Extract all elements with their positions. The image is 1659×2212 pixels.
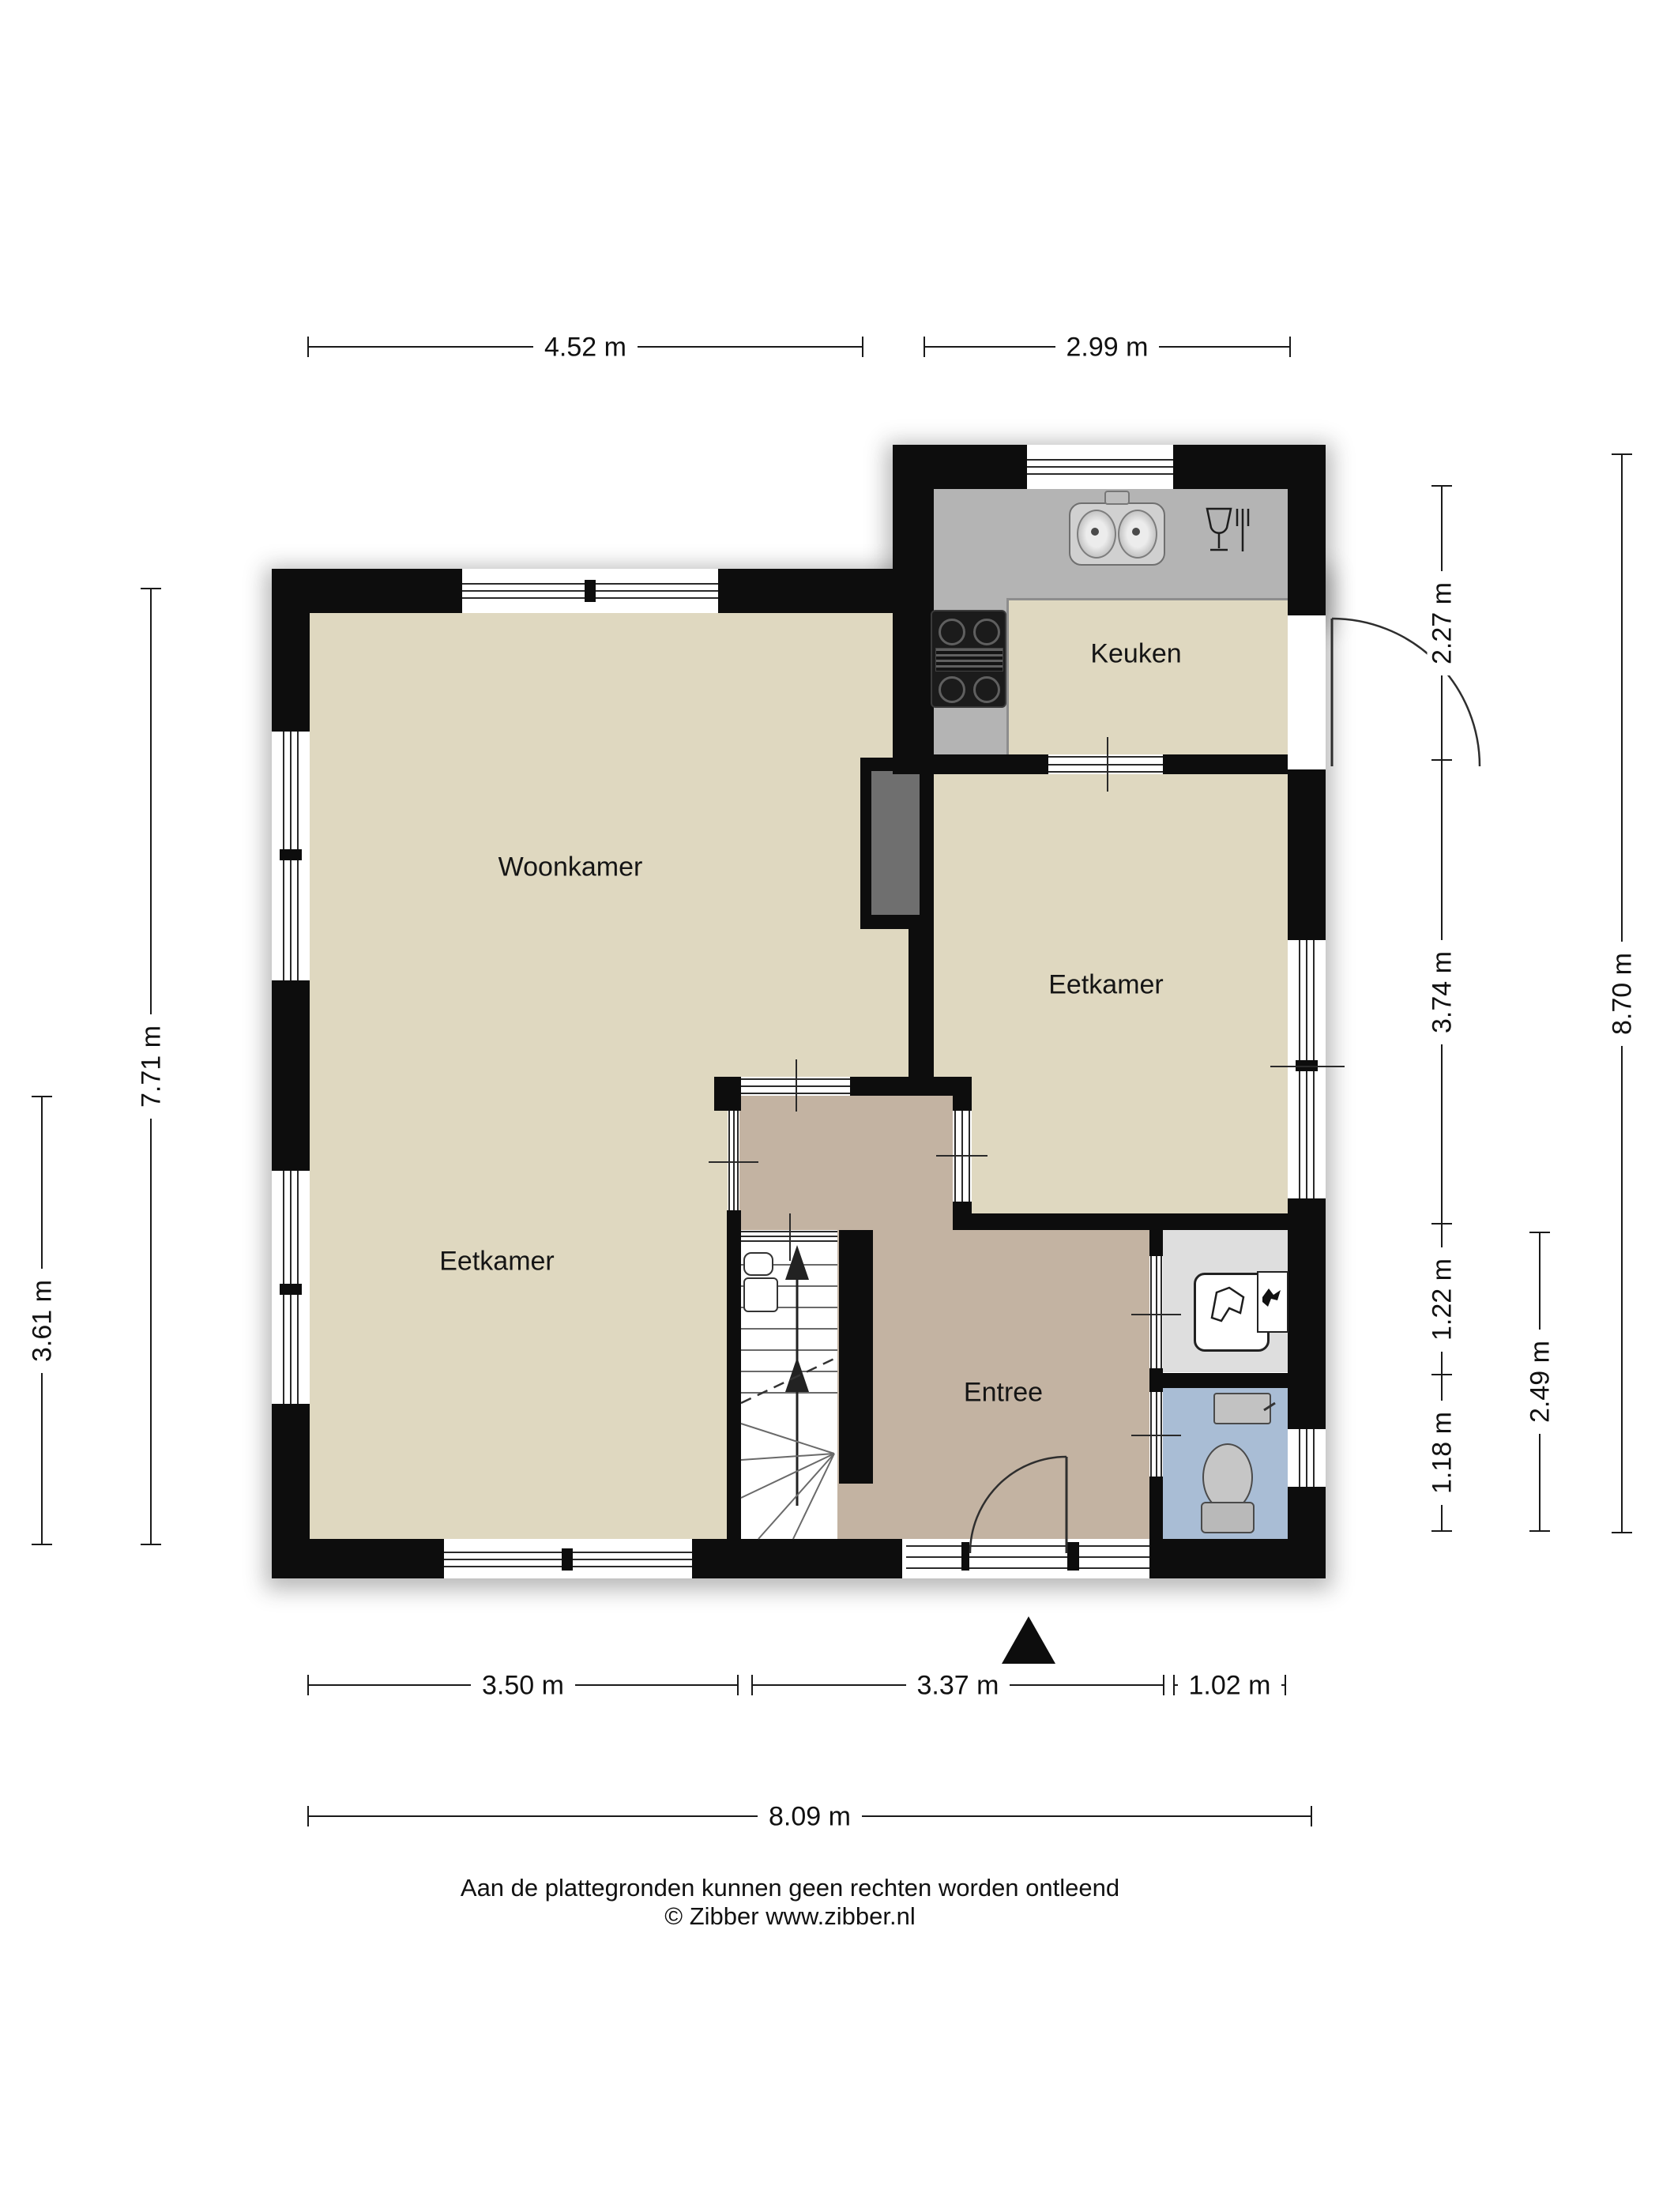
front-sidelight-right	[1079, 1545, 1149, 1569]
wall-keuken-eetkamer-1	[893, 754, 1048, 774]
sink-drain	[1091, 528, 1099, 536]
dimension-label: 1.22 m	[1428, 1247, 1458, 1352]
wall-stairs-right	[839, 1230, 873, 1484]
window-glazing	[728, 1111, 739, 1210]
dimension-label: 3.50 m	[471, 1671, 575, 1702]
window-tick	[936, 1155, 987, 1157]
wall-meterkast-left-1	[1149, 1230, 1163, 1256]
window-bottom	[444, 1539, 692, 1578]
wall-kitchen-top-1	[893, 445, 1027, 489]
dimension-label: 8.70 m	[1608, 942, 1638, 1046]
wall-entree-top	[850, 1077, 953, 1096]
door-meterkast	[1149, 1256, 1163, 1368]
floor-eetkamer-rechts	[934, 774, 1288, 1213]
burner	[939, 619, 965, 645]
faucet-icon	[1104, 491, 1130, 505]
window-mullion	[280, 1284, 302, 1295]
dimension-label: 1.02 m	[1178, 1671, 1282, 1702]
dimension-label: 7.71 m	[137, 1014, 167, 1119]
toilet-tank-icon	[1201, 1502, 1255, 1533]
dimension-label: 2.99 m	[1055, 333, 1160, 363]
window-glazing	[1048, 756, 1163, 773]
window-mullion	[280, 849, 302, 860]
stove-grill	[935, 648, 1003, 671]
window-glazing	[906, 1545, 961, 1569]
dimension-line-1.02-m: 1.02 m	[1174, 1684, 1285, 1686]
window-glazing	[1079, 1545, 1149, 1569]
dimension-line-3.37-m: 3.37 m	[752, 1684, 1164, 1686]
door-opening-keuken	[1288, 615, 1326, 769]
dimension-label: 3.74 m	[1428, 940, 1458, 1044]
stair-fixture-small	[743, 1252, 773, 1276]
dimension-line-8.09-m: 8.09 m	[308, 1815, 1311, 1817]
burner	[973, 676, 1000, 703]
window-keuken-eetkamer	[1048, 754, 1163, 774]
footer-disclaimer: Aan de plattegronden kunnen geen rechten…	[461, 1874, 1119, 1902]
wall-woonkamer-eetkamer	[908, 929, 934, 1096]
washbasin-icon	[1213, 1393, 1271, 1424]
wall-eetkamer-bottom	[953, 1213, 1288, 1230]
dimension-line-2.49-m: 2.49 m	[1539, 1232, 1540, 1531]
dimension-label: 8.09 m	[758, 1802, 862, 1833]
dimension-line-2.27-m: 2.27 m	[1441, 486, 1443, 760]
window-tick	[1131, 1314, 1181, 1315]
entrance-arrow	[1002, 1616, 1055, 1664]
wall-right-1	[1288, 445, 1326, 615]
window-glazing	[1299, 1429, 1315, 1487]
wall-meterkast-toilet	[1149, 1373, 1288, 1388]
wall-toilet-left	[1149, 1477, 1163, 1539]
chimney-niche	[871, 771, 920, 915]
window-eetkamer-right	[1288, 940, 1326, 1198]
floor-entree-zuid	[965, 1213, 1151, 1539]
dimension-line-3.50-m: 3.50 m	[308, 1684, 738, 1686]
window-glazing	[1150, 1256, 1162, 1368]
wall-right-3	[1288, 1198, 1326, 1429]
wall-kitchen-left	[893, 445, 934, 774]
dimension-label: 2.27 m	[1428, 571, 1458, 675]
dimension-label: 4.52 m	[533, 333, 638, 363]
wall-bottom-1	[272, 1539, 444, 1578]
window-keuken-top	[1027, 445, 1173, 489]
burner	[939, 676, 965, 703]
wall-left-2	[272, 980, 310, 1171]
window-tick	[796, 1059, 797, 1112]
dimension-line-3.61-m: 3.61 m	[41, 1097, 43, 1544]
wall-top-1	[272, 569, 462, 613]
boiler-side-box	[1257, 1271, 1288, 1333]
window-mullion	[562, 1548, 573, 1571]
window-tick	[709, 1161, 758, 1163]
stair-fixture-large	[743, 1277, 778, 1312]
wall-stairs-left	[727, 1210, 741, 1539]
wall-entree-corner-right-boven	[953, 1077, 972, 1111]
wall-bottom-3	[1149, 1539, 1326, 1578]
stove-icon	[931, 610, 1006, 708]
kitchen-door-arc	[1332, 619, 1480, 766]
wall-right-2	[1288, 769, 1326, 940]
floor-plan-page: KeukenWoonkamerEetkamerEetkamerEntree 4.…	[0, 0, 1659, 2212]
window-woonkamer-top	[462, 569, 718, 613]
front-sidelight-left	[906, 1545, 961, 1569]
window-left-1	[272, 732, 310, 980]
wall-keuken-eetkamer-2	[1163, 754, 1288, 774]
dimension-line-1.18-m: 1.18 m	[1441, 1375, 1443, 1531]
window-glazing	[1027, 459, 1173, 475]
opening-entree-left	[728, 1111, 739, 1210]
dimension-line-4.52-m: 4.52 m	[308, 346, 863, 348]
front-door-post-right	[1067, 1542, 1079, 1571]
dimension-line-2.99-m: 2.99 m	[924, 346, 1290, 348]
window-tick	[1107, 737, 1108, 792]
window-tick	[1270, 1066, 1345, 1067]
window-tick	[1131, 1435, 1181, 1436]
window-tick	[789, 1213, 791, 1261]
window-toilet-right	[1288, 1429, 1326, 1487]
front-door-sill	[969, 1545, 1067, 1569]
wall-entree-corner-left	[714, 1077, 741, 1111]
dimension-line-1.22-m: 1.22 m	[1441, 1224, 1443, 1375]
dimension-line-3.74-m: 3.74 m	[1441, 760, 1443, 1224]
burner	[973, 619, 1000, 645]
dimension-label: 2.49 m	[1525, 1330, 1556, 1434]
dimension-line-7.71-m: 7.71 m	[150, 589, 152, 1544]
front-door-post-left	[961, 1542, 969, 1571]
dimension-label: 1.18 m	[1428, 1401, 1458, 1505]
sink-drain	[1132, 528, 1140, 536]
wall-bottom-2	[692, 1539, 902, 1578]
sink-icon	[1069, 502, 1165, 566]
window-left-2	[272, 1171, 310, 1404]
dimension-label: 3.61 m	[28, 1269, 58, 1373]
footer-copyright: © Zibber www.zibber.nl	[664, 1902, 915, 1931]
dimension-line-8.70-m: 8.70 m	[1621, 454, 1623, 1533]
window-mullion	[585, 580, 596, 602]
sill-lines	[969, 1545, 1067, 1569]
dimension-label: 3.37 m	[906, 1671, 1010, 1702]
wall-top-2	[718, 569, 893, 613]
